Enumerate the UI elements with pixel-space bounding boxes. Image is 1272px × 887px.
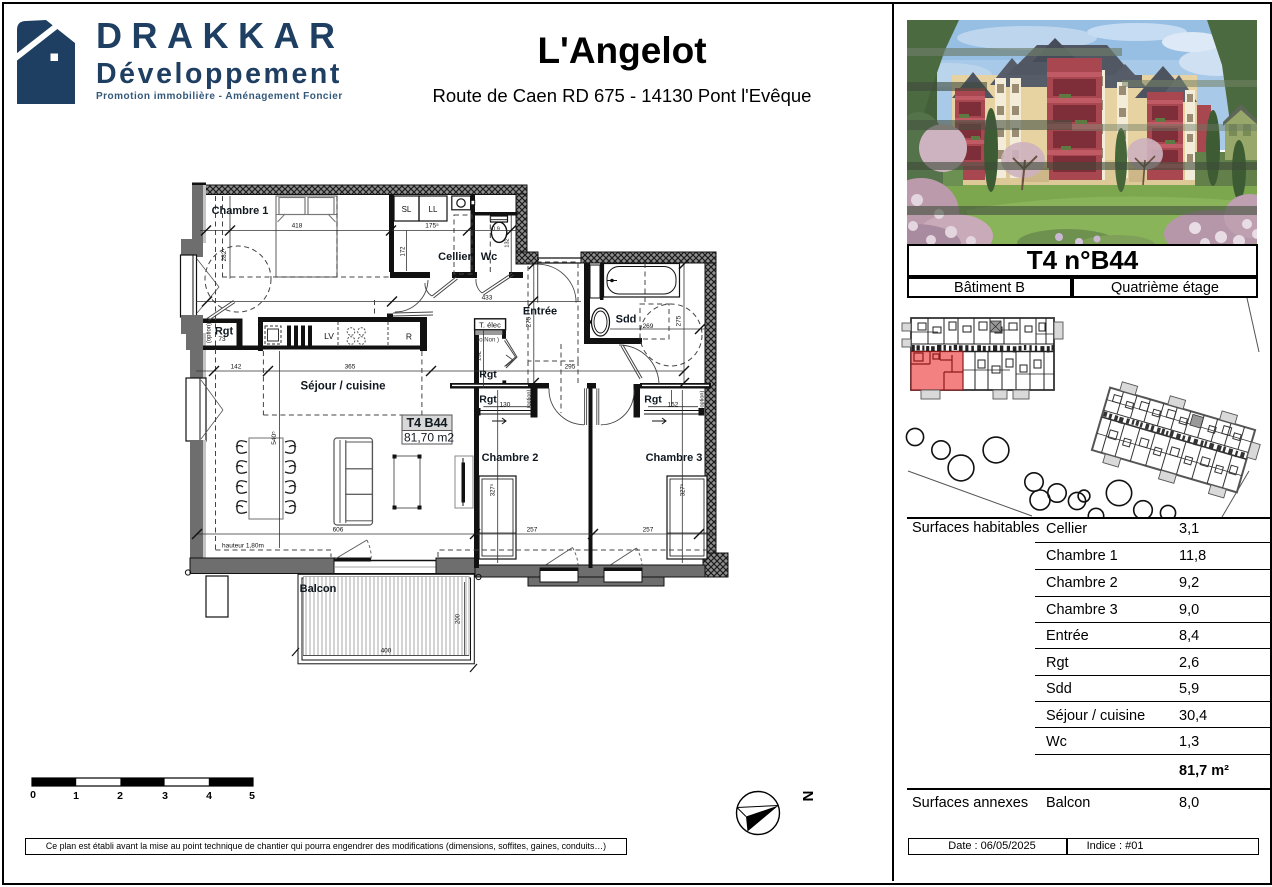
svg-text:Rgt: Rgt: [215, 326, 234, 338]
svg-text:T4 B44: T4 B44: [407, 416, 448, 430]
svg-text:2: 2: [117, 790, 123, 802]
svg-text:(option): (option): [207, 323, 213, 343]
svg-text:Cellier: Cellier: [438, 251, 472, 263]
svg-text:606: 606: [333, 527, 344, 534]
svg-text:(option): (option): [527, 390, 533, 409]
svg-text:269: 269: [643, 323, 654, 330]
svg-text:327⁵: 327⁵: [680, 483, 687, 496]
svg-text:175⁵: 175⁵: [425, 223, 439, 230]
svg-text:200: 200: [456, 613, 462, 624]
svg-text:SL: SL: [402, 205, 412, 214]
svg-text:Rgt: Rgt: [479, 394, 497, 406]
svg-text:Rgt: Rgt: [479, 369, 497, 381]
svg-text:5: 5: [249, 790, 255, 802]
svg-text:275: 275: [676, 315, 683, 326]
svg-text:1: 1: [73, 790, 79, 802]
svg-text:400: 400: [381, 648, 392, 655]
svg-text:0: 0: [30, 789, 36, 801]
svg-text:142: 142: [231, 364, 242, 371]
svg-text:(option): (option): [700, 391, 706, 410]
svg-text:540⁵: 540⁵: [271, 431, 278, 445]
svg-text:257: 257: [643, 527, 654, 534]
svg-text:257: 257: [527, 527, 538, 534]
svg-text:295: 295: [565, 364, 576, 371]
svg-text:172: 172: [401, 246, 407, 257]
svg-text:Wc: Wc: [481, 251, 498, 263]
svg-text:R: R: [406, 332, 412, 342]
svg-text:4: 4: [206, 790, 212, 802]
svg-text:3: 3: [162, 790, 168, 802]
svg-text:282: 282: [221, 250, 228, 261]
svg-text:433: 433: [482, 295, 493, 302]
svg-text:Séjour / cuisine: Séjour / cuisine: [301, 381, 386, 393]
svg-text:152: 152: [668, 402, 679, 409]
svg-text:Rgt: Rgt: [644, 394, 662, 406]
svg-text:Balcon: Balcon: [300, 583, 337, 595]
svg-text:Entrée: Entrée: [523, 306, 557, 318]
svg-text:132: 132: [505, 238, 511, 247]
svg-text:N: N: [799, 791, 816, 802]
svg-text:418: 418: [292, 223, 303, 230]
svg-text:81,70 m2: 81,70 m2: [404, 431, 454, 445]
svg-text:275: 275: [526, 316, 533, 327]
svg-text:(o.Non ): (o.Non ): [477, 338, 499, 344]
svg-text:Chambre 1: Chambre 1: [212, 205, 269, 217]
svg-text:130: 130: [500, 402, 511, 409]
svg-text:Chambre 2: Chambre 2: [482, 452, 539, 464]
svg-text:T. élec: T. élec: [479, 321, 501, 330]
svg-text:152: 152: [477, 350, 483, 361]
svg-text:LL: LL: [429, 205, 438, 214]
svg-text:LV: LV: [324, 331, 334, 341]
svg-text:365: 365: [345, 364, 356, 371]
svg-text:Sdd: Sdd: [616, 314, 637, 326]
svg-text:Chambre 3: Chambre 3: [646, 452, 703, 464]
svg-text:hauteur 1,80m: hauteur 1,80m: [222, 543, 264, 550]
svg-text:0.9: 0.9: [492, 227, 500, 233]
svg-text:327⁵: 327⁵: [490, 483, 497, 496]
